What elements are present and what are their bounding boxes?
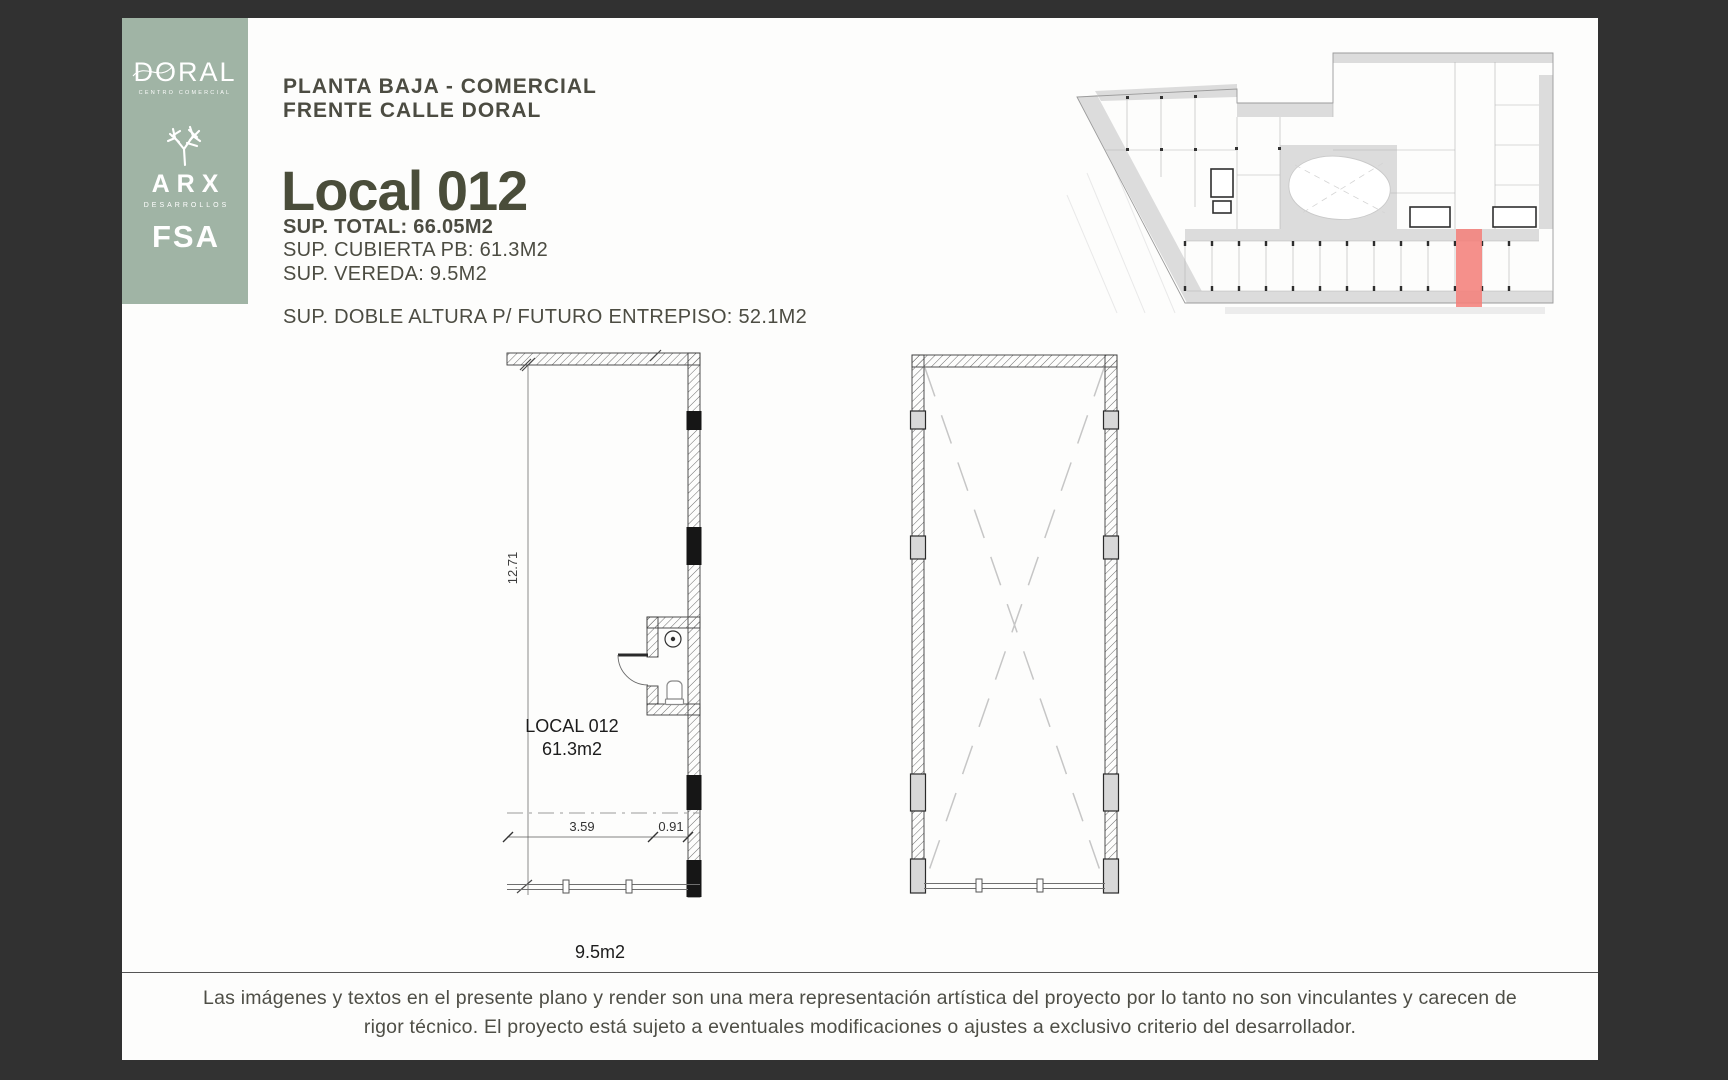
sidewalk-area-label: 9.5m2	[575, 942, 625, 962]
unit-area-label: 61.3m2	[542, 739, 602, 759]
doral-logo: DORAL CENTRO COMERCIAL	[125, 50, 245, 100]
wall-columns	[911, 411, 1119, 893]
site-plan	[1065, 45, 1565, 317]
sup-doble-altura: SUP. DOBLE ALTURA P/ FUTURO ENTREPISO: 5…	[283, 306, 807, 329]
disclaimer-text: Las imágenes y textos en el presente pla…	[185, 984, 1535, 1042]
local012-plan: 12.71 LOCAL 012 61.3m2	[503, 350, 702, 962]
sup-vereda: SUP. VEREDA: 9.5M2	[283, 263, 487, 286]
doral-wordmark: DORAL	[133, 57, 236, 87]
fsa-wordmark: FSA	[150, 219, 220, 255]
storefront-glazing	[507, 885, 700, 890]
toilet-icon	[666, 681, 684, 705]
arx-subtitle: DESARROLLOS	[141, 202, 230, 209]
disclaimer-divider	[122, 972, 1598, 973]
floor-plan-drawings: 12.71 LOCAL 012 61.3m2	[460, 340, 1160, 990]
brand-sidebar: DORAL CENTRO COMERCIAL ARX DESARROLLOS F…	[122, 18, 248, 304]
void-cross-lines	[925, 368, 1104, 882]
sup-cubierta: SUP. CUBIERTA PB: 61.3M2	[283, 239, 548, 262]
plan-type-heading: PLANTA BAJA - COMERCIAL	[283, 75, 597, 99]
unit-title: Local 012	[281, 158, 527, 223]
doble-altura-plan	[911, 355, 1119, 893]
sup-total: SUP. TOTAL: 66.05M2	[283, 216, 493, 239]
storefront-glazing	[924, 884, 1105, 889]
site-plan-drawing	[1067, 53, 1553, 314]
street-heading: FRENTE CALLE DORAL	[283, 99, 597, 123]
highlighted-unit	[1456, 229, 1482, 307]
doral-subtitle: CENTRO COMERCIAL	[139, 90, 232, 96]
arx-branch-icon	[163, 122, 207, 168]
plan-heading: PLANTA BAJA - COMERCIAL FRENTE CALLE DOR…	[283, 75, 597, 123]
depth-dimension: 12.71	[505, 552, 520, 585]
screenshot-root: { "colors":{ "background":"#313131","pag…	[0, 0, 1728, 1080]
width-dimension: 3.59	[569, 819, 594, 834]
unit-label: LOCAL 012	[525, 716, 618, 736]
entry-dimension: 0.91	[658, 819, 683, 834]
plan-sheet-page: DORAL CENTRO COMERCIAL ARX DESARROLLOS F…	[122, 18, 1598, 1060]
door-arc	[618, 655, 648, 685]
arx-wordmark: ARX	[145, 170, 226, 199]
